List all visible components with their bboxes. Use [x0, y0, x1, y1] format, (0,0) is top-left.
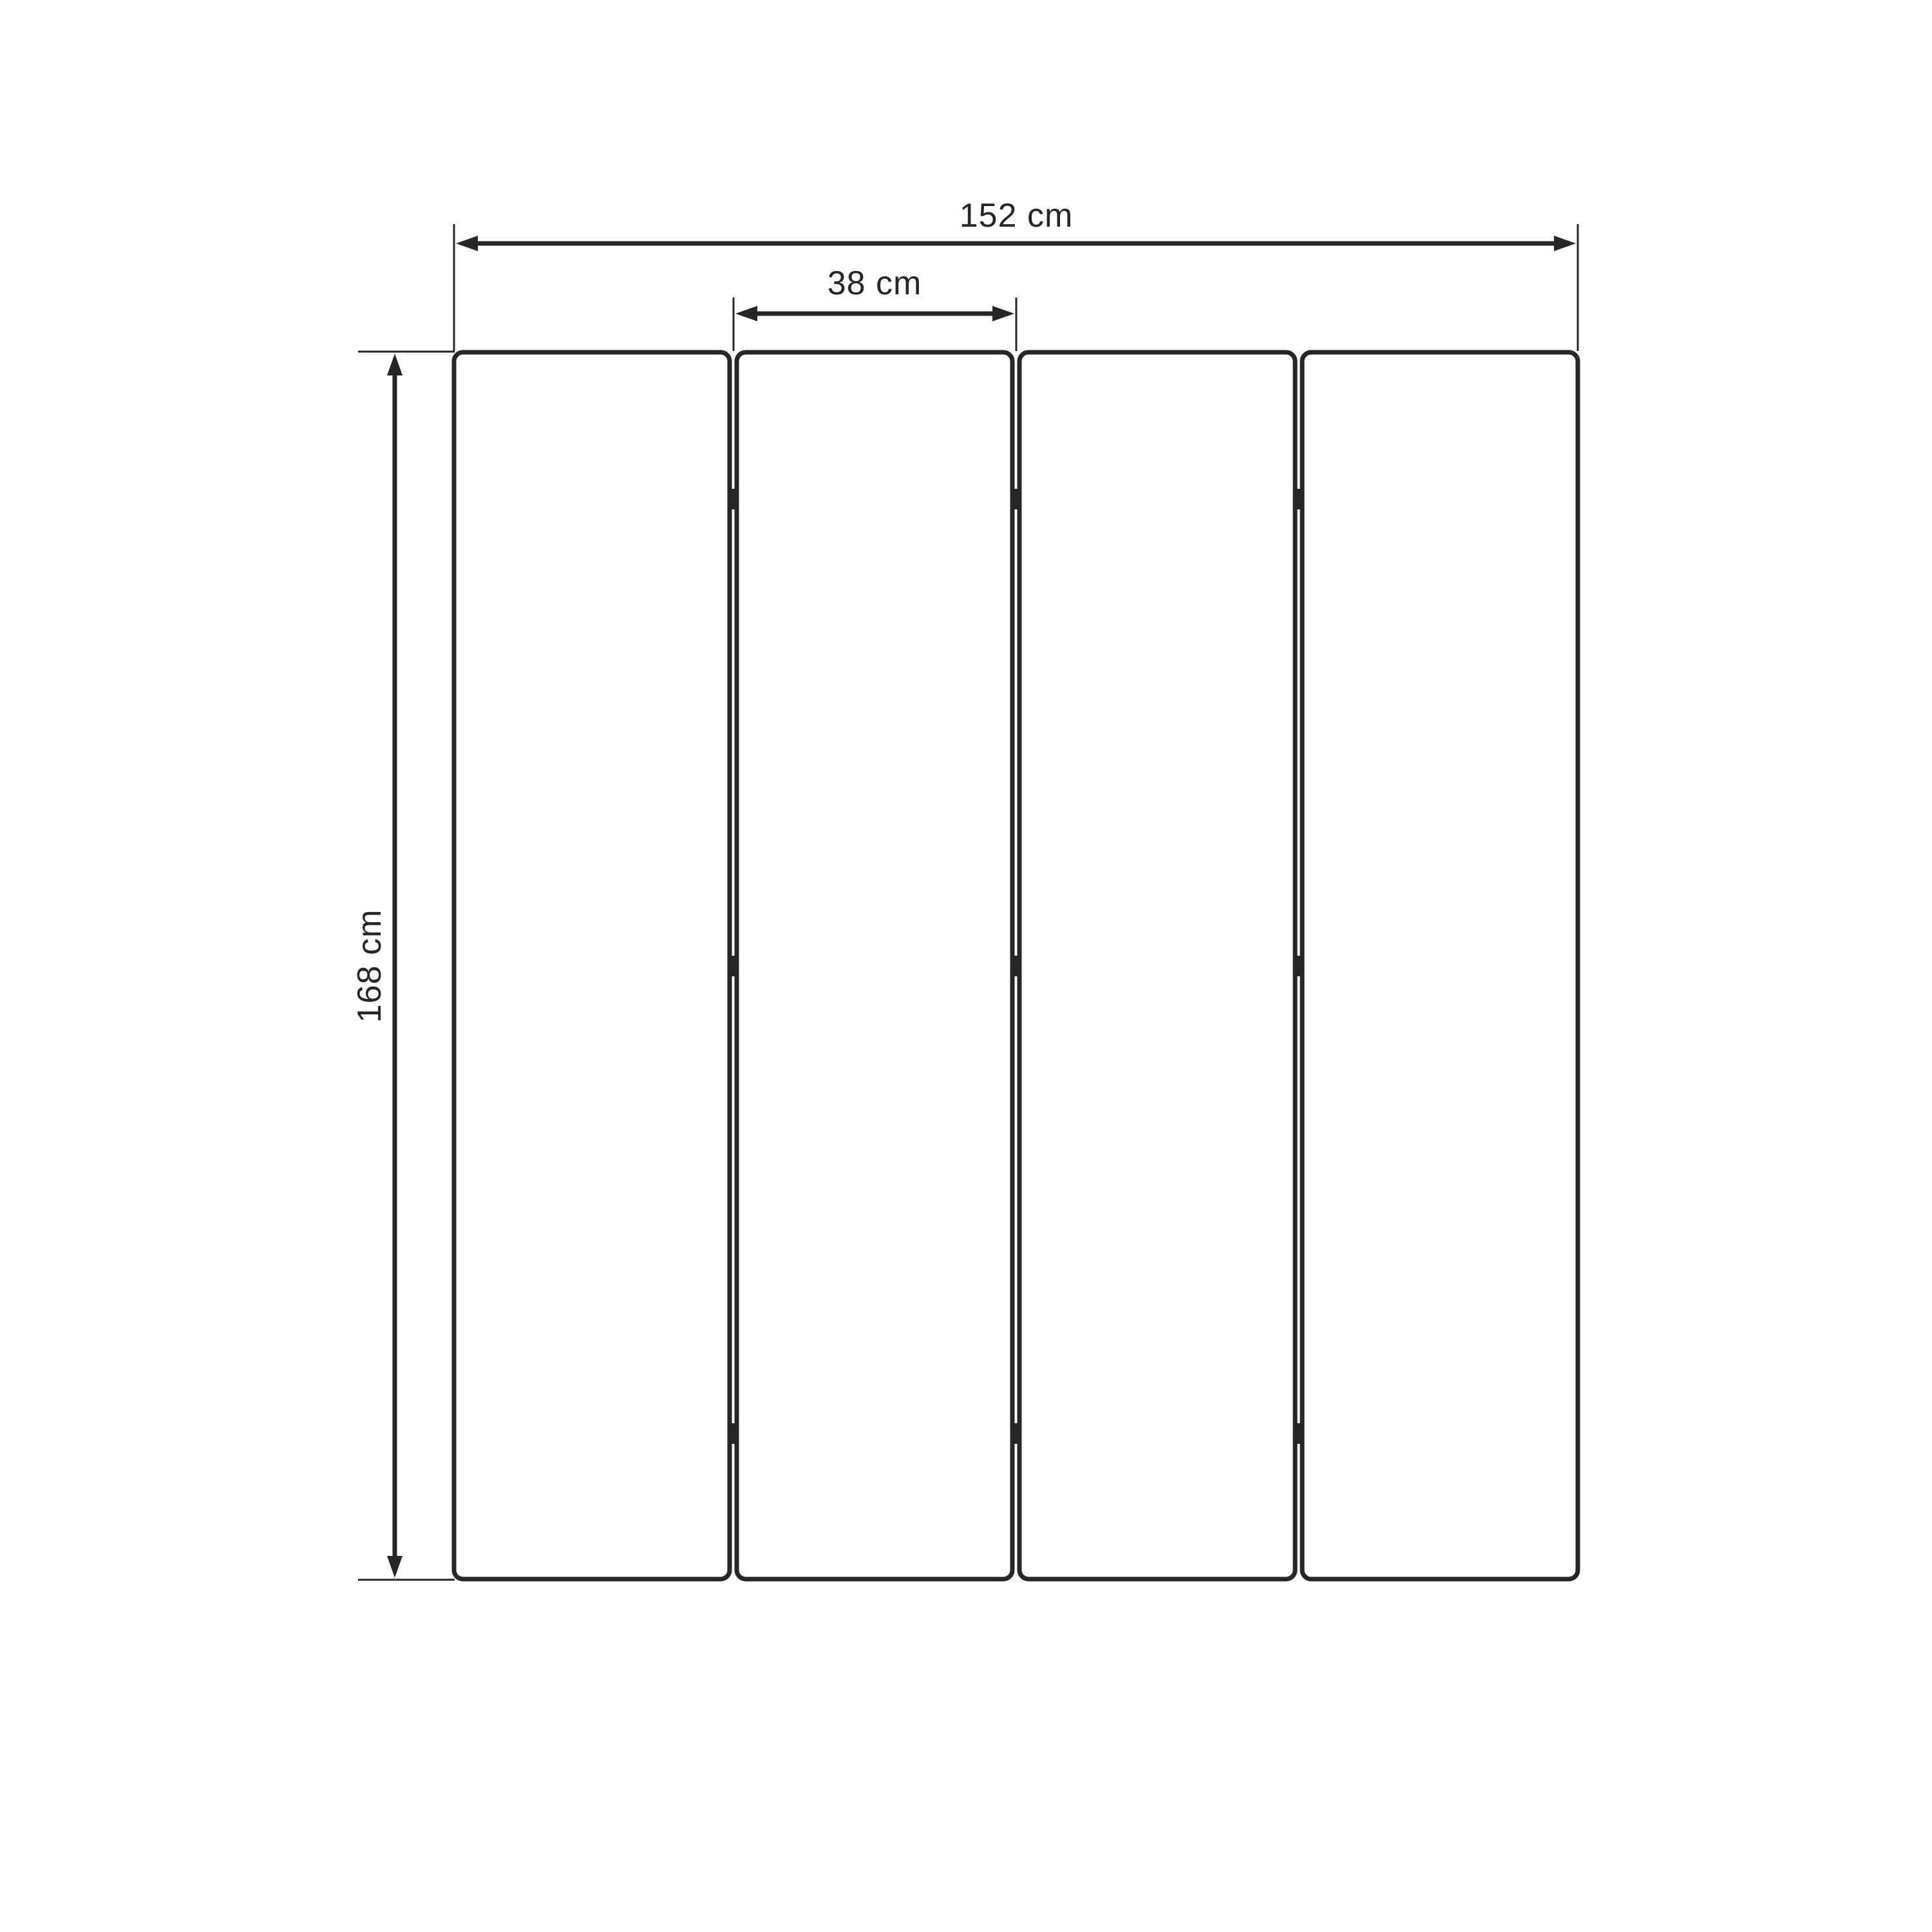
diagram-canvas: 152 cm 38 cm 168 cm [0, 0, 1932, 1932]
filled-geometry: 152 cm 38 cm 168 cm [351, 197, 1576, 1578]
panel-width-label: 38 cm [828, 265, 922, 302]
hinge-gap3-top [1294, 489, 1304, 509]
hinge-gap1-bottom [728, 1423, 739, 1444]
panel-2 [737, 352, 1012, 1579]
overall-width-label: 152 cm [960, 197, 1074, 234]
hinge-gap2-bottom [1011, 1423, 1021, 1444]
arrowhead-overall-left [456, 236, 478, 251]
hinge-gap1-top [728, 489, 739, 509]
hinge-gap2-middle [1011, 956, 1021, 976]
hinge-gap2-top [1011, 489, 1021, 509]
arrowhead-panel-left [735, 306, 757, 321]
arrowhead-panel-right [992, 306, 1014, 321]
panel-4 [1302, 352, 1578, 1579]
hinge-gap1-middle [728, 956, 739, 976]
height-label: 168 cm [351, 909, 388, 1023]
arrowhead-overall-right [1554, 236, 1576, 251]
stroked-geometry [358, 224, 1578, 1580]
folding-screen-dimension-diagram: 152 cm 38 cm 168 cm [0, 0, 1932, 1932]
panel-3 [1019, 352, 1295, 1579]
hinge-gap3-bottom [1294, 1423, 1304, 1444]
arrowhead-height-top [387, 354, 402, 375]
panel-1 [454, 352, 730, 1579]
hinge-gap3-middle [1294, 956, 1304, 976]
arrowhead-height-bottom [387, 1556, 402, 1578]
